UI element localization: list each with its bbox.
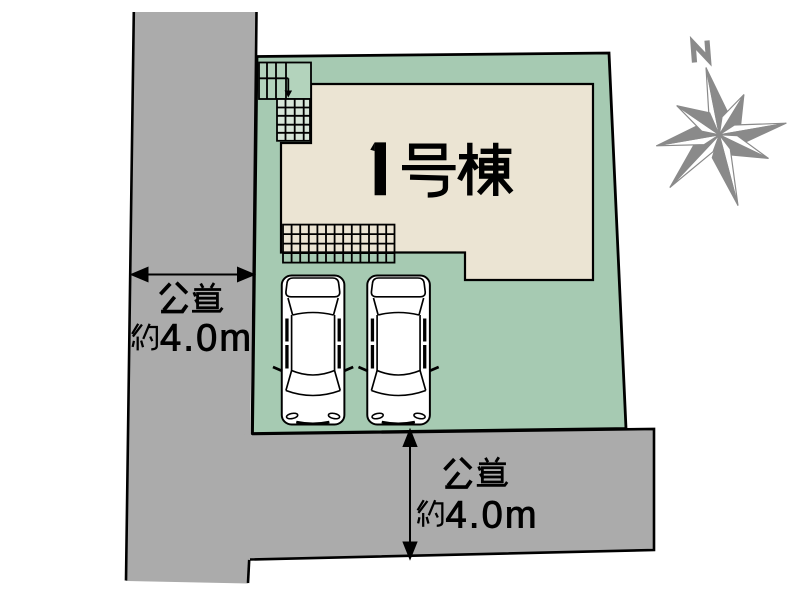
svg-text:4.0m: 4.0m — [446, 494, 539, 536]
svg-text:4.0m: 4.0m — [160, 318, 253, 360]
